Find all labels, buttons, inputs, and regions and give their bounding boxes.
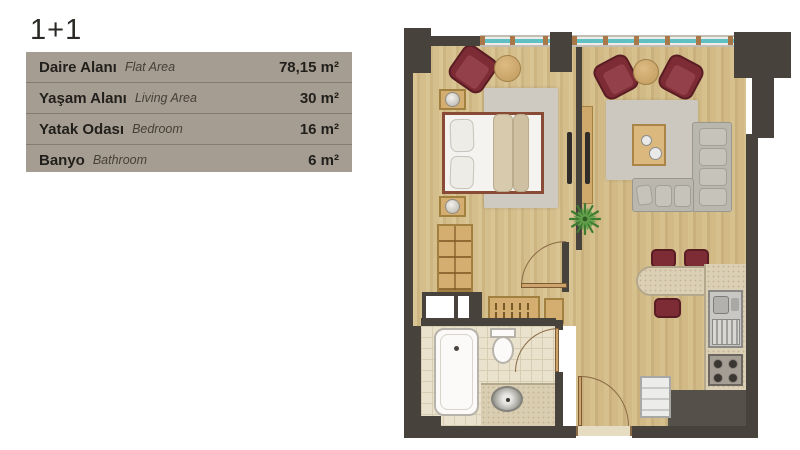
sofa-section-vertical [692,122,732,212]
armchair-cushion [602,63,634,95]
bedside-lamp [445,199,460,214]
wall [555,372,563,428]
window-mullion-icon [603,36,608,45]
table-row: Yaşam Alanı Living Area 30 m² [26,83,352,114]
window-mullion-icon [634,36,639,45]
row-label-en: Bathroom [93,153,147,167]
round-side-table [494,55,521,82]
armchair-cushion [664,64,696,96]
row-label-en: Bedroom [132,122,183,136]
duvet-fold [513,114,529,192]
burner-icon [713,373,723,383]
sink-bowl [713,296,729,314]
row-value: 16 m² [300,121,339,138]
row-value: 78,15 m² [279,59,339,76]
duvet [493,114,513,192]
table-row: Daire Alanı Flat Area 78,15 m² [26,52,352,83]
washbasin [491,386,523,412]
window-mullion-icon [510,36,515,45]
bedroom-window [480,35,550,47]
row-label-tr: Yatak Odası [39,121,124,138]
plan-type-title: 1+1 [30,14,82,47]
wall [421,318,556,326]
entrance-door [578,376,582,426]
entrance-threshold [576,426,632,436]
cup-icon [649,147,662,160]
window-mullion-icon [696,36,701,45]
row-value: 6 m² [308,152,339,169]
sofa-cushion [699,188,727,206]
window-mullion-icon [480,36,485,45]
washing-machine [640,376,671,418]
dish-rack [712,319,740,345]
wall [632,426,758,438]
row-value: 30 m² [300,90,339,107]
wall [413,426,576,438]
bar-chair [654,298,681,318]
sofa-cushion [655,185,672,207]
kitchen-sink-unit [708,290,743,348]
burner-icon [713,359,723,369]
bathroom-door [555,328,559,372]
shaft-area [668,390,746,426]
living-window [572,35,734,47]
bedside-lamp [445,92,460,107]
table-row: Yatak Odası Bedroom 16 m² [26,114,352,145]
pillow [449,156,474,190]
row-label-en: Living Area [135,91,197,105]
row-label-tr: Daire Alanı [39,59,117,76]
sofa-cushion [674,185,691,207]
wall [746,134,758,438]
table-row: Banyo Bathroom 6 m² [26,145,352,175]
row-label-tr: Banyo [39,152,85,169]
drain-icon [506,398,510,402]
wall-pier [550,32,572,72]
sofa-section-horizontal [632,178,694,212]
row-label-tr: Yaşam Alanı [39,90,127,107]
drain-icon [454,346,459,351]
wall [404,68,413,330]
window-mullion-icon [543,36,548,45]
window-mullion-icon [728,36,733,45]
wall-corner [734,32,791,78]
burner-icon [728,359,738,369]
bathtub [434,328,479,416]
window-mullion-icon [572,36,577,45]
sofa-cushion [699,168,727,186]
wardrobe [437,224,473,292]
area-table: Daire Alanı Flat Area 78,15 m² Yaşam Ala… [26,52,352,172]
wall-column [752,74,774,138]
wall-corner [404,28,431,73]
floor-plan [404,28,792,440]
toilet-bowl [492,336,514,364]
drainboard [731,298,739,311]
double-bed [442,112,544,194]
pillow [449,119,474,153]
row-label-en: Flat Area [125,60,175,74]
window-mullion-icon [665,36,670,45]
cup-icon [641,135,652,146]
sofa-pillow [636,184,654,206]
coffee-table [632,124,666,166]
hanger-rail [495,303,533,310]
stove [708,354,743,386]
round-side-table [633,59,659,85]
plant-icon [568,202,602,236]
sofa-cushion [699,148,727,166]
tv-bedroom-icon [567,132,572,184]
burner-icon [728,373,738,383]
sofa-cushion [699,128,727,146]
bedroom-door [521,283,567,288]
tv-living-icon [585,132,590,184]
